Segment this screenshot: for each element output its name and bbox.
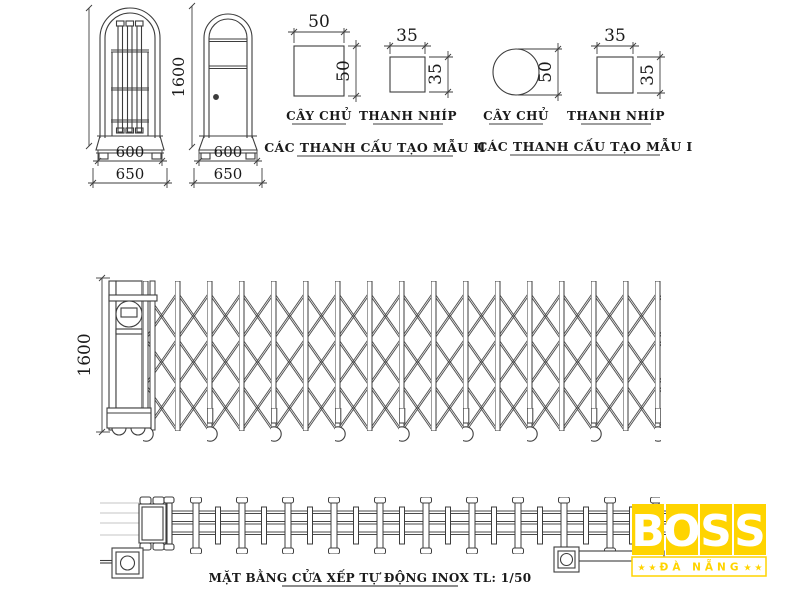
cay-chu-round-section bbox=[493, 49, 539, 95]
post-a-inner-bars bbox=[117, 21, 144, 133]
plan-drive-post bbox=[139, 497, 174, 550]
gate-elevation: 1600 bbox=[75, 275, 661, 445]
model1-title: CÁC THANH CẤU TẠO MẪU I bbox=[477, 137, 692, 154]
post-b-elevation bbox=[199, 14, 257, 159]
model1-sections: 50 35 35 CÂY CHỦ THANH NHÍP CÁC THANH CẤ… bbox=[477, 26, 692, 155]
model2-dim-lines bbox=[288, 28, 453, 156]
post-wheel-right bbox=[131, 428, 145, 435]
keyhole-icon bbox=[214, 95, 219, 100]
logo-subtitle: ĐÀ NẴNG bbox=[660, 559, 743, 574]
cay-chu2-width-dim: 50 bbox=[308, 12, 330, 32]
logo-letter-s2: S bbox=[734, 506, 766, 557]
plan-caption: MẶT BẰNG CỬA XẾP TỰ ĐỘNG INOX TL: 1/50 bbox=[209, 568, 532, 585]
logo-letter-o: O bbox=[663, 506, 700, 557]
thanh-nhip2-width-dim: 35 bbox=[396, 26, 418, 46]
thanh-nhip1-width-dim: 35 bbox=[604, 26, 626, 46]
plan-uprights bbox=[190, 497, 660, 554]
cay-chu2-label: CÂY CHỦ bbox=[286, 106, 352, 123]
post-a-outer-width-dim: 650 bbox=[116, 165, 145, 183]
thanh-nhip2-height-dim: 35 bbox=[426, 63, 446, 85]
thanh-nhip1-label: THANH NHÍP bbox=[567, 108, 665, 123]
post-b-outer-width-dim: 650 bbox=[214, 165, 243, 183]
post-wheel-left bbox=[112, 428, 126, 435]
post-a-inner-width-dim: 600 bbox=[116, 143, 145, 161]
logo-letter-s1: S bbox=[700, 506, 732, 557]
post-b-inner-width-dim: 600 bbox=[214, 143, 243, 161]
logo-stars-right: ★ ★ bbox=[744, 564, 763, 574]
gate-height-dim: 1600 bbox=[75, 333, 95, 376]
thanh-nhip-square-section-1 bbox=[597, 57, 633, 93]
boss-logo: B O S S ★ ★ ĐÀ NẴNG ★ ★ bbox=[631, 504, 766, 576]
thanh-nhip-square-section bbox=[390, 57, 425, 92]
cay-chu1-diameter-dim: 50 bbox=[536, 61, 556, 83]
thanh-nhip2-label: THANH NHÍP bbox=[359, 108, 457, 123]
cad-drawing-page: 1600 600 650 600 650 50 50 35 bbox=[0, 0, 800, 600]
left-catch-post bbox=[100, 548, 143, 578]
thanh-nhip1-height-dim: 35 bbox=[638, 64, 658, 86]
cay-chu2-height-dim: 50 bbox=[334, 60, 354, 82]
post-a-elevation bbox=[96, 8, 164, 159]
guide-lines bbox=[100, 503, 139, 535]
gate-wheels bbox=[143, 408, 661, 445]
model2-title: CÁC THANH CẤU TẠO MẪU II bbox=[264, 138, 486, 155]
cay-chu1-label: CÂY CHỦ bbox=[483, 106, 549, 123]
model2-sections: 50 50 35 35 CÂY CHỦ THANH NHÍP CÁC THANH… bbox=[264, 12, 486, 156]
gate-plan-view: MẶT BẰNG CỬA XẾP TỰ ĐỘNG INOX TL: 1/50 bbox=[100, 497, 666, 586]
posts-height-dim: 1600 bbox=[169, 57, 188, 98]
logo-stars-left: ★ ★ bbox=[638, 564, 657, 574]
logo-letter-b: B bbox=[631, 506, 665, 557]
drawing-canvas: 1600 600 650 600 650 50 50 35 bbox=[0, 0, 800, 600]
